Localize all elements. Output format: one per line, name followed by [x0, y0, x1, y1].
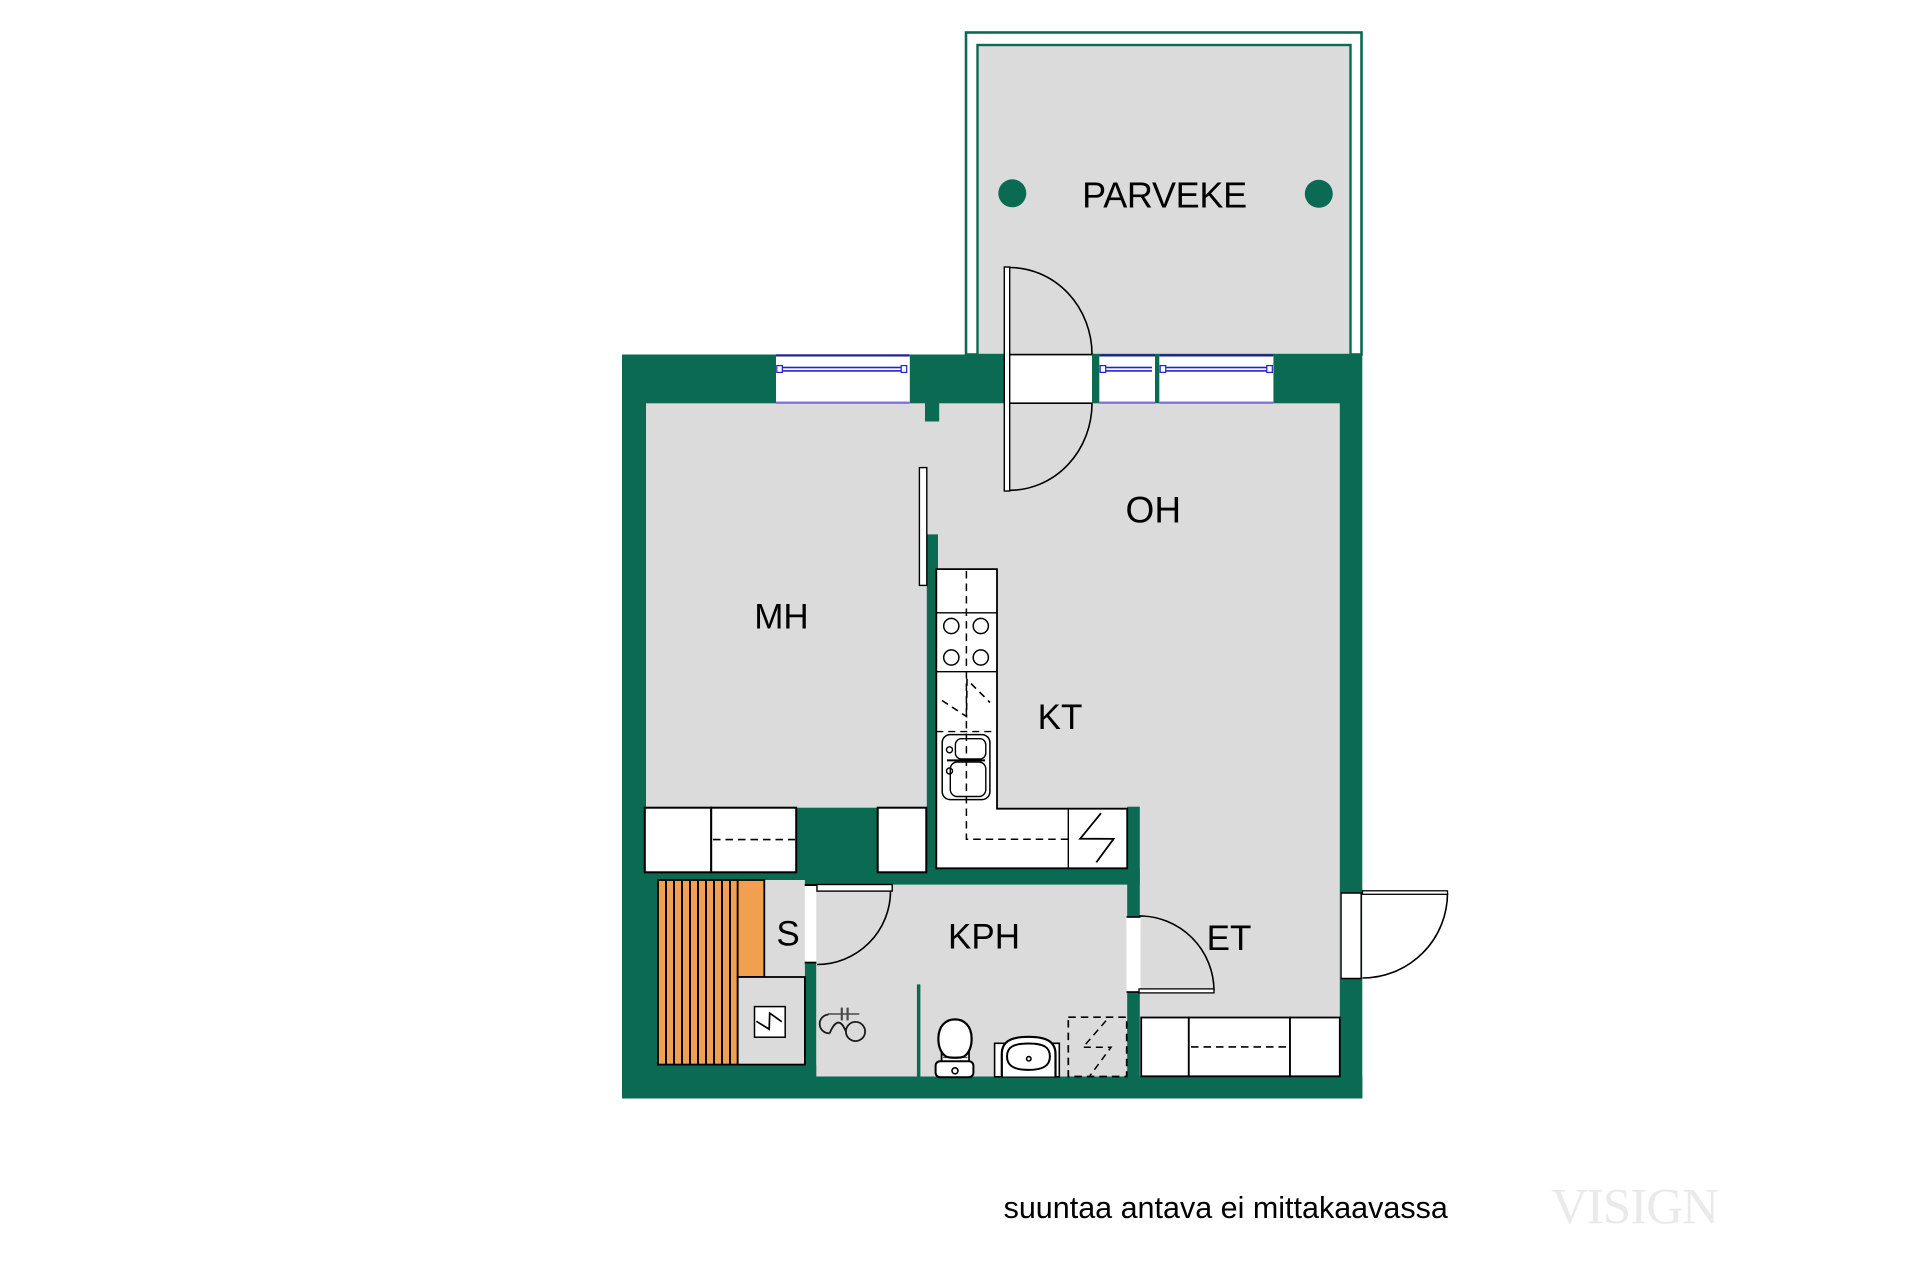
svg-text:PARVEKE: PARVEKE: [1082, 175, 1247, 216]
svg-text:VISIGN: VISIGN: [1551, 1179, 1718, 1235]
svg-text:ET: ET: [1207, 919, 1252, 958]
svg-text:S: S: [776, 914, 799, 953]
svg-text:KPH: KPH: [948, 917, 1020, 956]
svg-text:OH: OH: [1126, 489, 1182, 530]
svg-text:MH: MH: [754, 597, 808, 636]
svg-text:KT: KT: [1038, 698, 1083, 737]
svg-text:suuntaa antava ei mittakaavass: suuntaa antava ei mittakaavassa: [1004, 1191, 1448, 1225]
